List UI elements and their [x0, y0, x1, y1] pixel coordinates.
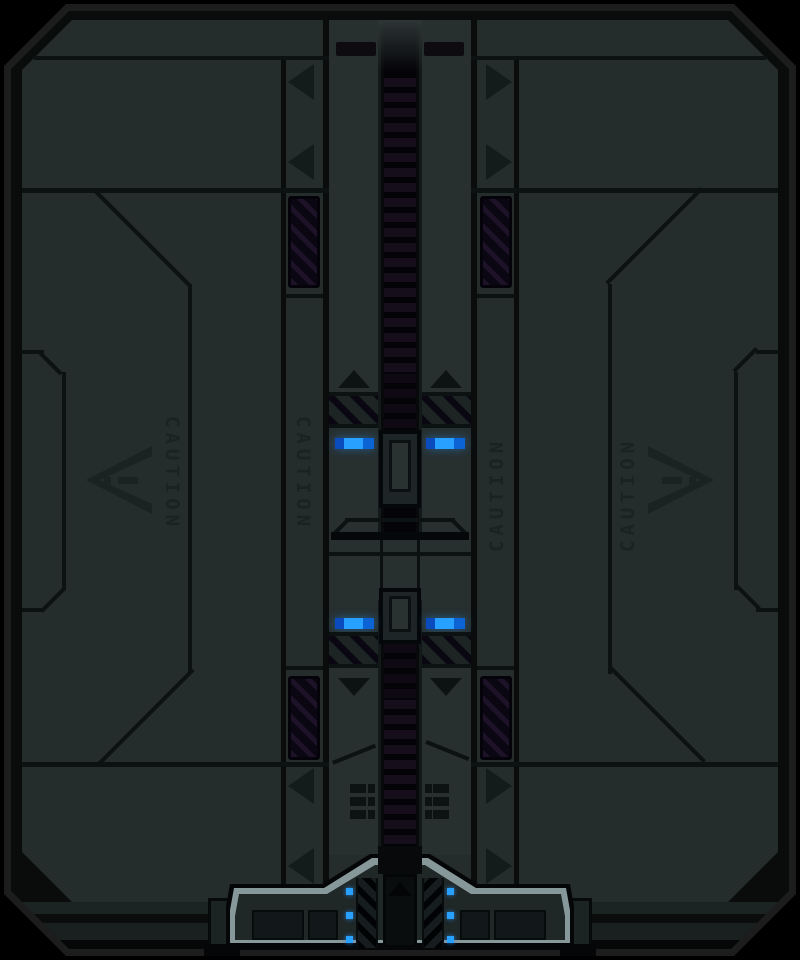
exclamation-bar	[118, 477, 138, 484]
right-inset-panel-edge	[734, 372, 738, 590]
light-segment	[426, 438, 435, 449]
indicator-light-bar	[335, 618, 374, 629]
indicator-dot	[447, 912, 454, 919]
light-segment	[454, 438, 465, 449]
hazard-slot	[480, 676, 512, 760]
light-segment	[335, 618, 344, 629]
base-panel	[308, 910, 338, 940]
lock-seam	[329, 664, 378, 668]
vent-slot	[433, 810, 449, 819]
right-inset-seam	[756, 350, 778, 354]
left-panel-edge	[188, 284, 192, 674]
light-segment	[435, 618, 454, 629]
light-segment	[335, 438, 344, 449]
light-segment	[363, 618, 374, 629]
panel-seam-line	[22, 188, 329, 193]
vent-slot	[350, 784, 366, 793]
indicator-dot	[346, 912, 353, 919]
caution-label: CAUTION	[617, 416, 645, 552]
indicator-light-bar	[426, 618, 465, 629]
cap-seam	[345, 518, 455, 522]
caution-label: CAUTION	[155, 416, 183, 552]
exclamation-dot	[689, 477, 696, 484]
base-panel	[460, 910, 490, 940]
column-seam-line	[477, 666, 514, 670]
channel-end-block	[378, 846, 422, 874]
column-seam-line	[286, 666, 323, 670]
exclamation-dot	[104, 477, 111, 484]
track-rungs	[384, 78, 416, 374]
vent-slot	[350, 810, 366, 819]
vent-slot	[425, 797, 432, 806]
center-separator	[471, 20, 477, 902]
vent-slot	[425, 784, 432, 793]
blast-door[interactable]: CAUTION CAUTION CAUTION CAUTION	[0, 0, 800, 960]
vent-slot	[433, 784, 449, 793]
panel-seam-line	[471, 762, 778, 767]
vent-slot	[368, 784, 375, 793]
vent-slot	[425, 810, 432, 819]
vent-slot	[368, 797, 375, 806]
lock-seam	[329, 424, 378, 428]
cap-plate-line	[329, 552, 471, 556]
top-vent-slot	[424, 42, 464, 56]
panel-seam-line	[22, 762, 329, 767]
track-rungs	[384, 374, 416, 430]
column-seam-line	[286, 294, 323, 298]
light-segment	[435, 438, 454, 449]
lower-keyway-slot	[389, 596, 411, 632]
cap-shadow-line	[331, 532, 469, 540]
light-segment	[363, 438, 374, 449]
panel-seam-line	[471, 188, 778, 193]
hazard-band	[422, 396, 471, 424]
vent-slot	[433, 797, 449, 806]
indicator-dot	[346, 888, 353, 895]
exclamation-bar	[662, 477, 682, 484]
lock-seam	[422, 664, 471, 668]
hazard-band	[422, 636, 471, 664]
right-inset-seam	[756, 608, 778, 612]
hazard-band	[329, 396, 378, 424]
hazard-slot	[480, 196, 512, 288]
caution-label: CAUTION	[286, 416, 314, 552]
top-band-seam	[471, 56, 766, 60]
column-seam-line	[477, 294, 514, 298]
top-band-seam	[34, 56, 329, 60]
vent-slot	[350, 797, 366, 806]
light-segment	[344, 618, 363, 629]
vent-slot	[368, 810, 375, 819]
upper-keyway-slot	[389, 440, 411, 492]
chevron-column	[356, 878, 378, 948]
channel-top-fade	[378, 20, 422, 72]
track-rungs	[384, 644, 416, 700]
right-panel-edge	[608, 284, 612, 674]
top-vent-slot	[336, 42, 376, 56]
indicator-dot	[447, 888, 454, 895]
indicator-dot	[346, 936, 353, 943]
left-inset-seam	[22, 350, 44, 354]
leaf-separator	[514, 58, 519, 902]
lock-seam	[422, 424, 471, 428]
left-inset-panel-edge	[62, 372, 66, 590]
hazard-band	[329, 636, 378, 664]
hazard-slot	[288, 196, 320, 288]
light-segment	[344, 438, 363, 449]
light-segment	[426, 618, 435, 629]
left-inset-seam	[22, 608, 44, 612]
light-segment	[454, 618, 465, 629]
caution-label: CAUTION	[486, 416, 514, 552]
indicator-light-bar	[426, 438, 465, 449]
track-rungs	[384, 700, 416, 856]
indicator-dot	[447, 936, 454, 943]
chevron-column	[422, 878, 444, 948]
base-assembly	[204, 846, 596, 958]
base-panel	[494, 910, 546, 940]
hazard-slot	[288, 676, 320, 760]
indicator-light-bar	[335, 438, 374, 449]
base-panel	[252, 910, 304, 940]
